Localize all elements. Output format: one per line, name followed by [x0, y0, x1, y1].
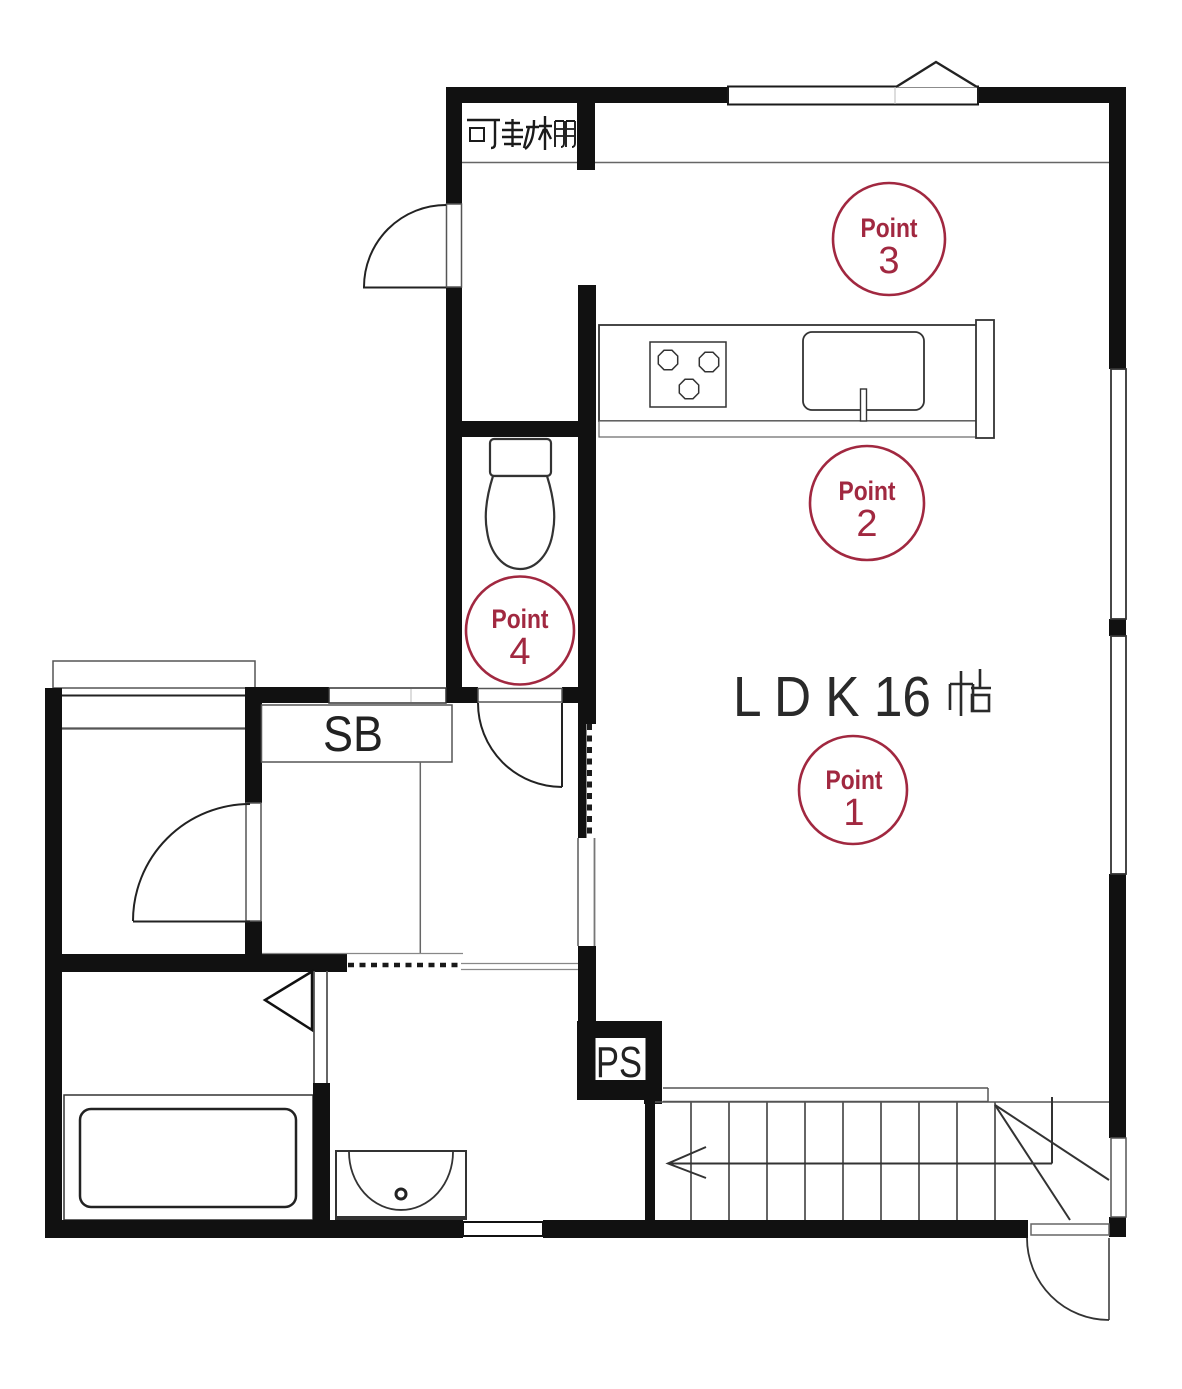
svg-text:L D K 16: L D K 16: [733, 665, 931, 729]
svg-text:Point: Point: [861, 213, 918, 243]
svg-text:3: 3: [878, 240, 899, 282]
svg-text:2: 2: [856, 503, 877, 545]
svg-text:PS: PS: [596, 1038, 642, 1087]
svg-text:Point: Point: [839, 476, 896, 506]
svg-text:Point: Point: [492, 604, 549, 634]
svg-text:4: 4: [509, 631, 530, 673]
svg-text:1: 1: [843, 792, 864, 834]
svg-text:SB: SB: [323, 706, 383, 762]
svg-text:Point: Point: [826, 765, 883, 795]
